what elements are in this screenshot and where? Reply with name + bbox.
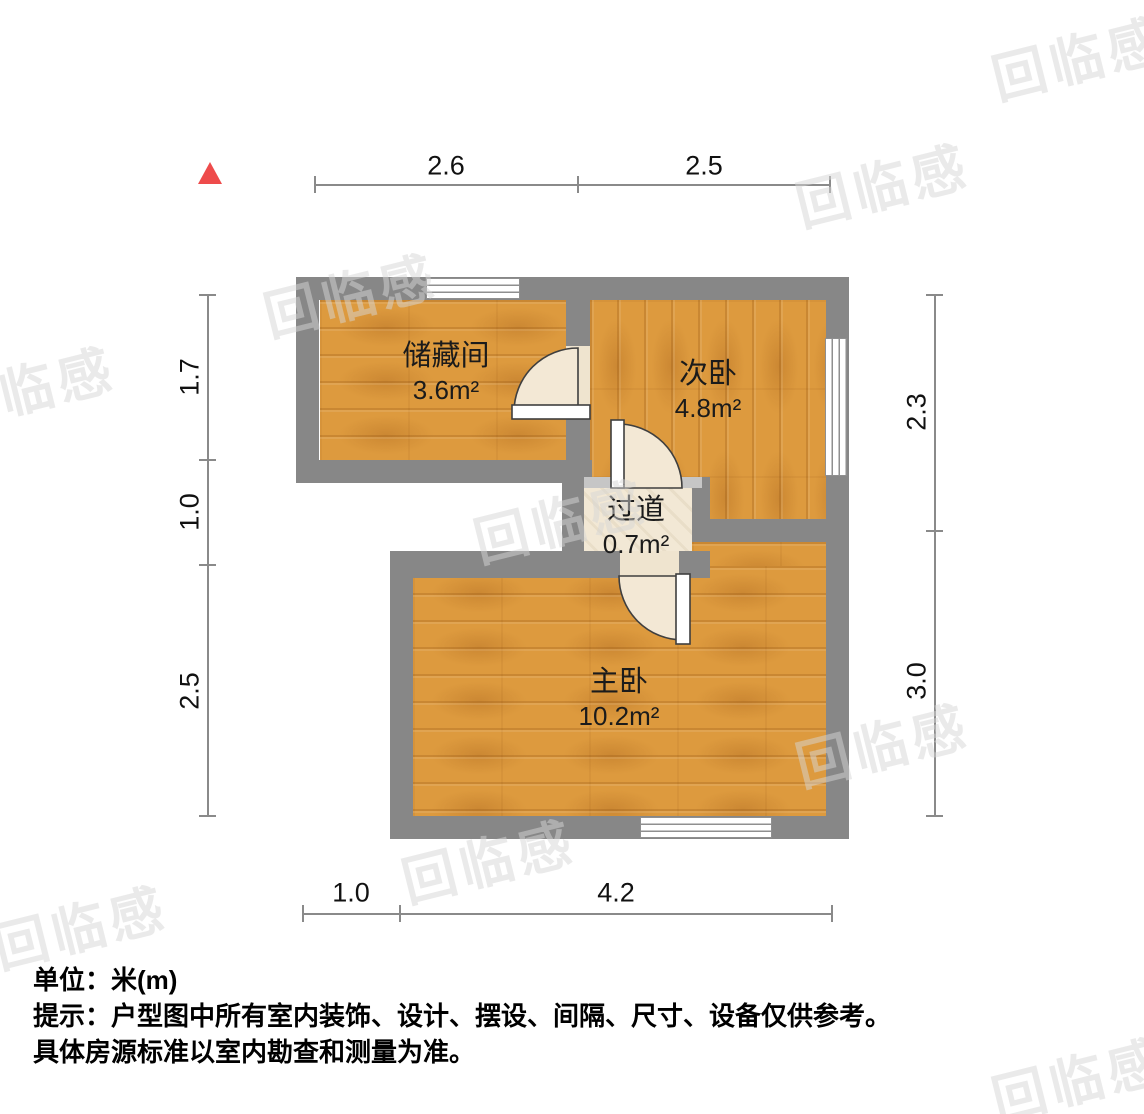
dim-line-left bbox=[207, 295, 209, 817]
wall-divider-storage-lower bbox=[566, 412, 590, 460]
dim-tick bbox=[199, 294, 216, 296]
dim-tick bbox=[199, 564, 216, 566]
wall-bottom bbox=[390, 816, 849, 839]
dim-tick bbox=[399, 905, 401, 922]
dim-value-top-2: 2.5 bbox=[685, 151, 723, 182]
dim-tick bbox=[199, 815, 216, 817]
room-name: 主卧 bbox=[579, 664, 660, 700]
wall-master-left bbox=[390, 551, 413, 839]
room-label-hallway: 过道 0.7m² bbox=[603, 492, 669, 561]
room-area: 3.6m² bbox=[402, 374, 489, 407]
dim-value-left-3: 2.5 bbox=[175, 672, 206, 710]
storage-door-threshold bbox=[566, 346, 590, 412]
room-name: 过道 bbox=[603, 492, 669, 528]
footer-unit-line: 单位：米(m) bbox=[33, 962, 891, 998]
dim-tick bbox=[199, 459, 216, 461]
wall-hallway-north-left bbox=[584, 477, 616, 488]
dim-line-bottom bbox=[303, 913, 832, 915]
wall-hallway-south-right bbox=[679, 551, 710, 578]
wall-master-top bbox=[390, 551, 620, 578]
window-top bbox=[426, 278, 520, 299]
dim-tick bbox=[926, 530, 943, 532]
dim-tick bbox=[314, 176, 316, 193]
dim-tick bbox=[831, 905, 833, 922]
room-name: 次卧 bbox=[675, 356, 741, 392]
master-bedroom-floor-upper bbox=[692, 542, 826, 566]
dim-tick bbox=[926, 294, 943, 296]
wall-hallway-west bbox=[562, 483, 584, 551]
window-right bbox=[825, 338, 847, 476]
room-name: 储藏间 bbox=[402, 338, 489, 374]
room-area: 4.8m² bbox=[675, 392, 741, 425]
footer-notes: 单位：米(m) 提示：户型图中所有室内装饰、设计、摆设、间隔、尺寸、设备仅供参考… bbox=[33, 962, 891, 1070]
dim-tick bbox=[926, 815, 943, 817]
wall-divider-storage-upper bbox=[566, 300, 590, 346]
dim-line-right bbox=[934, 295, 936, 817]
dim-tick bbox=[577, 176, 579, 193]
secondary-door-threshold bbox=[616, 477, 679, 488]
wall-bedroom-divider bbox=[692, 519, 826, 542]
wall-storage-bottom bbox=[296, 460, 592, 483]
dim-tick bbox=[302, 905, 304, 922]
window-bottom bbox=[640, 817, 772, 838]
room-label-secondary-bedroom: 次卧 4.8m² bbox=[675, 356, 741, 425]
dim-value-bottom-2: 4.2 bbox=[597, 878, 635, 909]
room-area: 0.7m² bbox=[603, 528, 669, 561]
dim-line-top bbox=[315, 184, 830, 186]
north-arrow-icon bbox=[198, 162, 222, 184]
wall-hallway-north-right bbox=[679, 477, 702, 488]
dim-value-bottom-1: 1.0 bbox=[332, 878, 370, 909]
wall-top bbox=[296, 277, 849, 300]
dim-value-top-1: 2.6 bbox=[427, 151, 465, 182]
watermark-text: 回临感 bbox=[983, 1016, 1144, 1114]
footer-note-line-1: 提示：户型图中所有室内装饰、设计、摆设、间隔、尺寸、设备仅供参考。 bbox=[33, 998, 891, 1034]
watermark-text: 回临感 bbox=[787, 122, 978, 241]
room-label-master-bedroom: 主卧 10.2m² bbox=[579, 664, 660, 733]
room-area: 10.2m² bbox=[579, 700, 660, 733]
dim-value-right-1: 2.3 bbox=[902, 393, 933, 431]
footer-note-line-2: 具体房源标准以室内勘查和测量为准。 bbox=[33, 1034, 891, 1070]
dim-tick bbox=[829, 176, 831, 193]
watermark-text: 回临感 bbox=[983, 0, 1144, 115]
watermark-text: 回临感 bbox=[0, 325, 123, 444]
dim-value-right-2: 3.0 bbox=[902, 662, 933, 700]
floorplan-canvas: 回临感 回临感 回临感 回临感 回临感 回临感 回临感 回临感 回临感 bbox=[0, 0, 1144, 1114]
dim-value-left-1: 1.7 bbox=[175, 358, 206, 396]
room-label-storage: 储藏间 3.6m² bbox=[402, 338, 489, 407]
dim-value-left-2: 1.0 bbox=[175, 493, 206, 531]
wall-left-upper bbox=[296, 277, 319, 483]
